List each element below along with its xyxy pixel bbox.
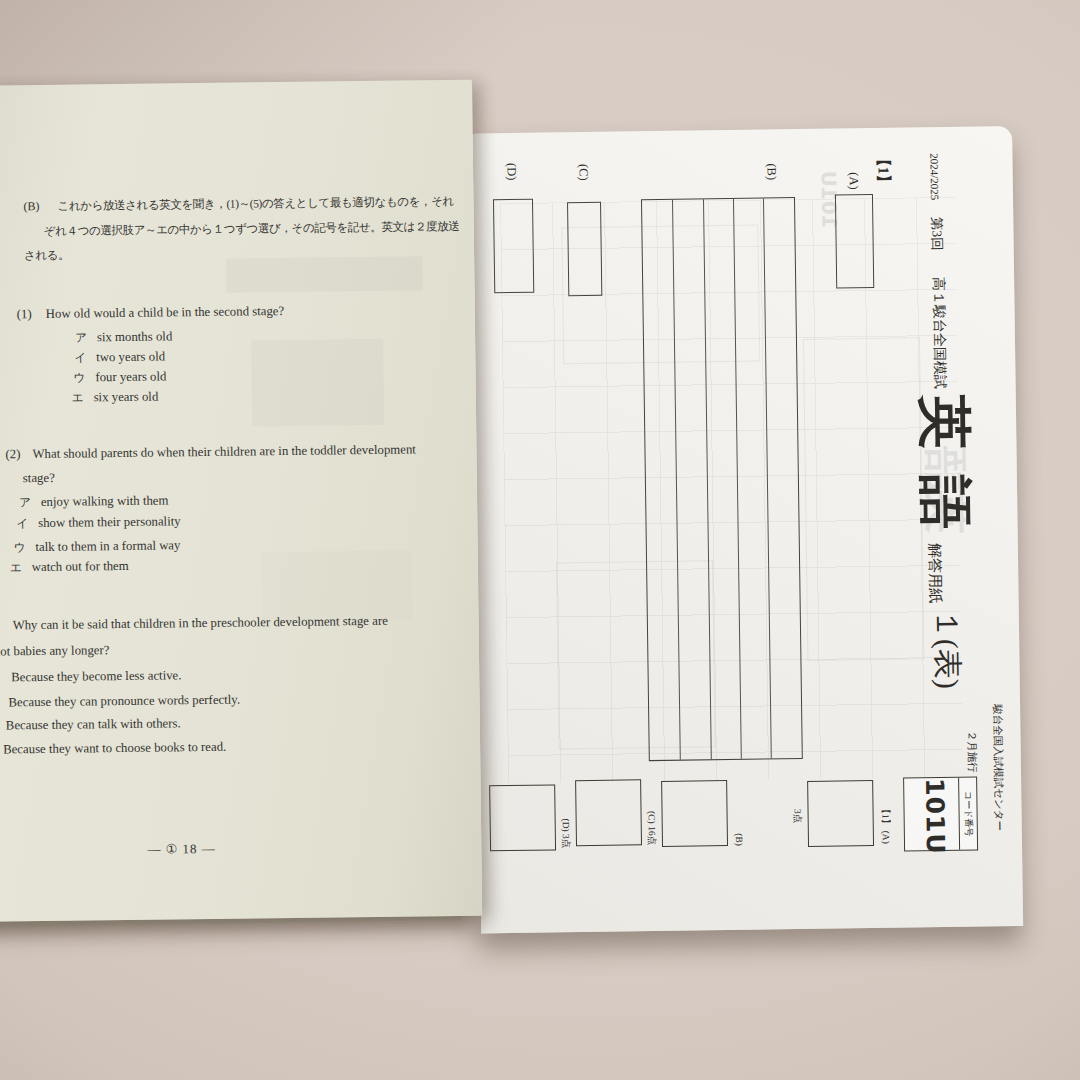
answer-row-label-c: (C) (575, 164, 590, 181)
question-number: (2) (5, 447, 20, 461)
choice-marker: イ (16, 516, 28, 531)
choice-text: watch out for them (32, 559, 129, 574)
choice-text: Because they can talk with others. (6, 716, 181, 733)
question-2: (2)What should parents do when their chi… (5, 442, 416, 462)
answer-row-label-b: (B) (763, 163, 778, 180)
choice-text: talk to them in a formal way (35, 538, 180, 554)
answer-box-d (493, 199, 534, 294)
choice-marker: イ (74, 350, 86, 365)
choice-text: enjoy walking with them (41, 493, 169, 509)
choice-text: Because they want to choose books to rea… (3, 740, 226, 758)
choice-text: four years old (95, 369, 166, 384)
question-text: How old would a child be in the second s… (46, 304, 285, 321)
ruled-line (703, 199, 712, 759)
exam-name: 高１駿台全国模試 (929, 277, 949, 389)
ruled-line (763, 198, 772, 758)
instruction-line: ぞれ４つの選択肢ア～エの中から１つずつ選び，その記号を記せ。英文は２度放送 (44, 219, 460, 239)
answer-row-label-a: (A) (846, 172, 861, 190)
question-text: What should parents do when their childr… (32, 442, 416, 461)
score-box-d (489, 784, 556, 851)
section-label: 【1】 (873, 152, 893, 190)
choice-text: Because they can pronounce words perfect… (8, 693, 240, 711)
choice-text: two years old (96, 349, 165, 364)
choice-row: ウtalk to them in a formal way (14, 535, 181, 555)
sheet-session: 第3回 (927, 217, 945, 251)
print-bleed-block (262, 550, 413, 622)
question-text-continued: stage? (23, 471, 55, 486)
choice-row: エwatch out for them (10, 556, 129, 575)
code-number-box: コード番号 101U (903, 777, 978, 852)
choice-row: イshow them their personality (16, 511, 181, 531)
score-box-label-d: (D) 3点 (558, 774, 572, 848)
answer-sheet: 英語 101U 2024/2025 第3回 高１駿台全国模試 英語 解答用紙 １… (470, 126, 1023, 933)
choice-text: Because they become less active. (11, 668, 181, 685)
choice-row: アsix months old (75, 326, 172, 345)
question-number: (1) (17, 307, 32, 321)
score-box-label-b: (B) (733, 778, 744, 846)
choice-row: ウfour years old (73, 366, 166, 385)
choice-row: イtwo years old (74, 346, 165, 365)
score-box-c (575, 779, 642, 846)
choice-text: six months old (97, 329, 173, 344)
print-bleed-block (226, 256, 422, 292)
organization-name: 駿台全国入試模試センター (990, 704, 1006, 831)
score-box-b (661, 780, 728, 847)
choice-row: アenjoy walking with them (19, 490, 169, 510)
answer-row-label-d: (D) (503, 163, 518, 181)
instruction-label: (B) (23, 199, 39, 214)
choice-marker: ア (19, 495, 31, 510)
photo-of-exam-papers: (B) これから放送される英文を聞き，(1)～(5)の答えとして最も適切なものを… (0, 0, 1080, 1080)
print-bleed-block (803, 337, 924, 661)
sheet-number: １(表) (926, 609, 968, 690)
choice-row: エsix years old (72, 387, 159, 406)
administration-date: ２月施行 (964, 731, 979, 773)
page-number: — ① 18 — (147, 841, 216, 858)
code-value: 101U (920, 778, 959, 851)
choice-text: show them their personality (38, 514, 181, 530)
score-box-label-c: (C) 16点 (644, 769, 658, 845)
instruction-line: される。 (24, 248, 69, 264)
question-3: Why can it be said that children in the … (13, 614, 388, 634)
score-box-label-a: 【1】 (A) (878, 774, 892, 844)
answer-writing-area-b (641, 197, 803, 761)
question-1: (1)How old would a child be in the secon… (17, 304, 285, 322)
choice-marker: ア (75, 330, 87, 345)
ruled-line (733, 199, 742, 759)
choice-marker: エ (72, 390, 84, 405)
question-text-continued: not babies any longer? (0, 643, 110, 659)
code-label: コード番号 (958, 778, 977, 850)
choice-marker: ウ (73, 370, 85, 385)
answer-box-c (567, 202, 602, 296)
sheet-type-label: 解答用紙 (925, 543, 945, 603)
answer-box-a (835, 194, 874, 289)
choice-marker: ウ (14, 540, 26, 555)
ruled-line (672, 200, 681, 760)
score-box-a (807, 780, 874, 847)
subject-title: 英語 (907, 394, 982, 555)
print-bleed-block (251, 339, 384, 427)
score-box-points-a: 3点 (791, 809, 804, 823)
choice-text: six years old (94, 390, 159, 405)
sheet-edition: 2024/2025 (928, 153, 941, 200)
instruction-line: これから放送される英文を聞き，(1)～(5)の答えとして最も適切なものを，それ (57, 194, 454, 214)
exam-question-page: (B) これから放送される英文を聞き，(1)～(5)の答えとして最も適切なものを… (0, 80, 482, 922)
choice-marker: エ (10, 560, 22, 575)
